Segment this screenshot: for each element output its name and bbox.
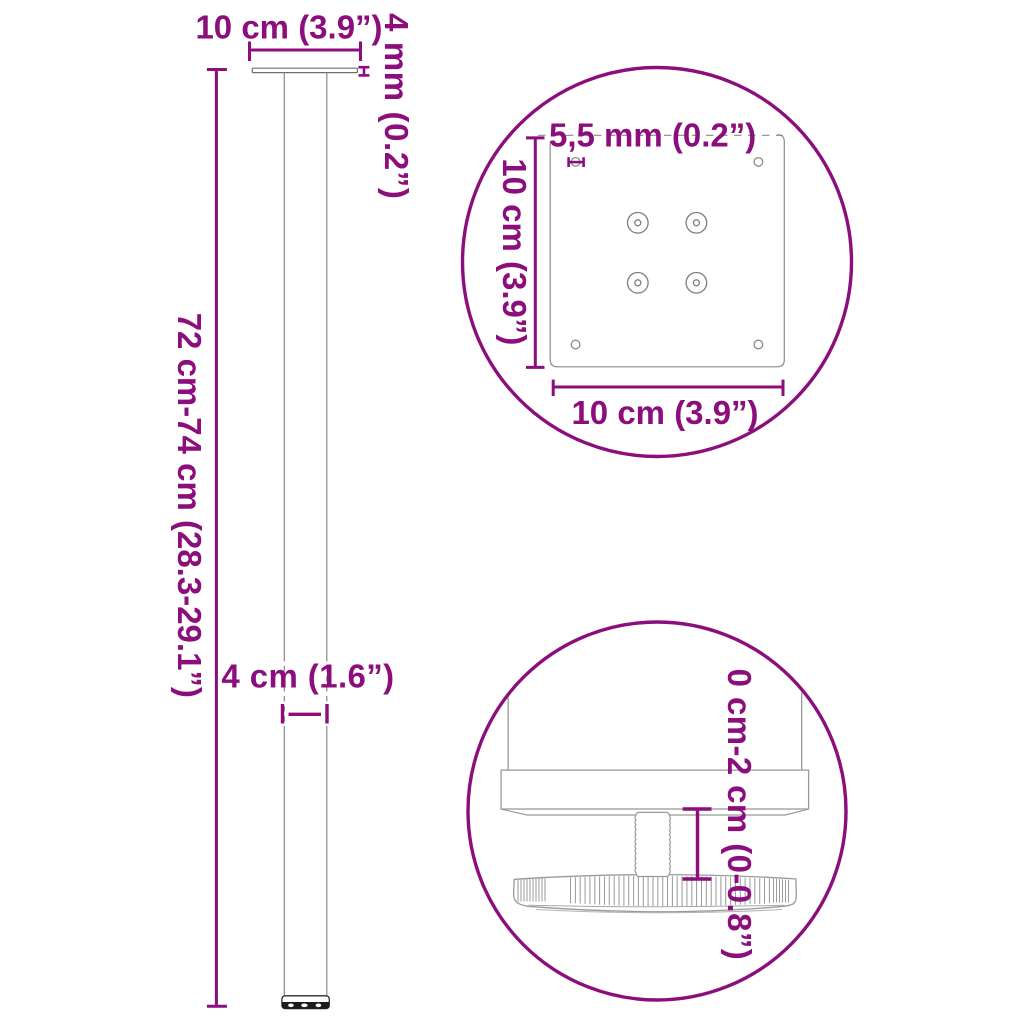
svg-text:0 cm-2 cm (0-0.8”): 0 cm-2 cm (0-0.8”) xyxy=(721,669,758,961)
svg-text:10 cm (3.9”): 10 cm (3.9”) xyxy=(496,158,533,345)
svg-text:4 mm (0.2”): 4 mm (0.2”) xyxy=(378,13,415,199)
svg-text:10 cm (3.9”): 10 cm (3.9”) xyxy=(195,9,382,46)
svg-text:10 cm (3.9”): 10 cm (3.9”) xyxy=(571,394,758,431)
svg-text:72 cm-74 cm (28.3-29.1”): 72 cm-74 cm (28.3-29.1”) xyxy=(171,313,208,698)
svg-text:5,5 mm (0.2”): 5,5 mm (0.2”) xyxy=(549,117,756,154)
svg-text:4 cm (1.6”): 4 cm (1.6”) xyxy=(221,658,394,695)
